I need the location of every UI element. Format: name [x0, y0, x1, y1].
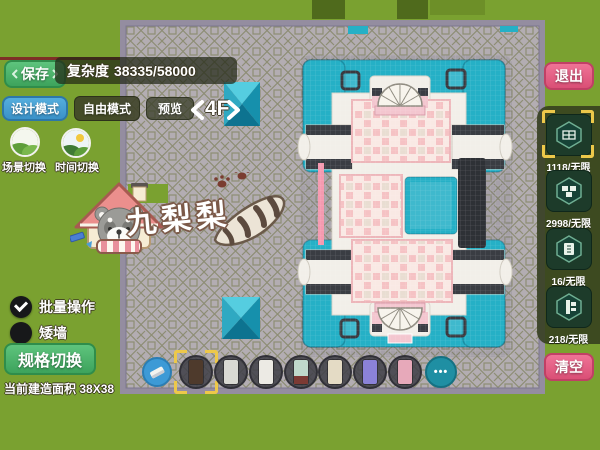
- spec-switch-label: 规格切换: [18, 347, 82, 371]
- material-item-0[interactable]: [179, 355, 213, 389]
- floor-next-button[interactable]: [227, 100, 241, 120]
- batch-op-checkbox[interactable]: [10, 296, 32, 318]
- build-area-label: 当前建造面积: [4, 382, 76, 396]
- complexity-label: 复杂度: [67, 61, 109, 81]
- batch-op-row: 批量操作: [10, 296, 95, 318]
- floor-indicator: 4F: [205, 97, 230, 121]
- low-wall-label: 矮墙: [39, 323, 67, 343]
- resource-item-pillar[interactable]: 218/无限: [537, 286, 600, 346]
- low-wall-row: 矮墙: [10, 322, 67, 344]
- tile-block-icon: [546, 228, 592, 270]
- material-item-1[interactable]: [214, 355, 248, 389]
- free-mode-button[interactable]: 自由模式: [74, 96, 140, 121]
- design-mode-button[interactable]: 设计模式: [2, 96, 68, 121]
- exit-button[interactable]: 退出: [544, 62, 594, 90]
- resource-item-brick[interactable]: 2998/无限: [537, 170, 600, 230]
- time-icon: [63, 130, 89, 156]
- teal-pyramid-2[interactable]: [222, 297, 260, 339]
- floor-prev-button[interactable]: [190, 100, 204, 120]
- paw-print-icon: [214, 172, 250, 188]
- material-item-6[interactable]: [388, 355, 422, 389]
- scene-switch-button[interactable]: [10, 127, 40, 157]
- tree-top-1: [312, 0, 345, 19]
- eraser-icon: [148, 365, 166, 379]
- clear-button[interactable]: 清空: [544, 353, 594, 381]
- build-area-info: 当前建造面积 38X38: [4, 380, 114, 397]
- resource-panel: 1118/无限 2998/无限 16/无限 218/无限: [537, 106, 600, 344]
- tree-top-2: [397, 0, 428, 19]
- wall-block-icon: [546, 114, 592, 156]
- chevron-left-icon: [12, 69, 18, 79]
- eraser-button[interactable]: [142, 357, 172, 387]
- scene-icon: [12, 129, 38, 155]
- material-item-3[interactable]: [284, 355, 318, 389]
- clear-label: 清空: [555, 357, 583, 377]
- scene-switch-label: 场景切换: [2, 159, 46, 175]
- tree-top-3: [430, 0, 485, 15]
- low-wall-checkbox[interactable]: [10, 322, 32, 344]
- time-switch-button[interactable]: [61, 128, 91, 158]
- spec-switch-button[interactable]: 规格切换: [4, 343, 96, 375]
- game-screen: 保存 复杂度 38335/58000 设计模式 自由模式 预览 4F 场景切换: [0, 0, 600, 450]
- complexity-bar: 复杂度 38335/58000: [55, 57, 237, 84]
- build-area-value: 38X38: [79, 382, 114, 396]
- exit-label: 退出: [555, 66, 583, 86]
- material-item-4[interactable]: [318, 355, 352, 389]
- player-name: 九梨梨: [124, 190, 232, 243]
- resource-item-wall[interactable]: 1118/无限: [537, 114, 600, 174]
- more-materials-button[interactable]: •••: [425, 356, 457, 388]
- building[interactable]: [298, 55, 512, 357]
- design-mode-label: 设计模式: [11, 100, 59, 117]
- material-item-2[interactable]: [249, 355, 283, 389]
- material-item-5[interactable]: [353, 355, 387, 389]
- brick-block-icon: [546, 170, 592, 212]
- batch-op-label: 批量操作: [39, 297, 95, 317]
- complexity-value: 38335/58000: [114, 63, 196, 79]
- more-dots-icon: •••: [434, 367, 449, 378]
- free-mode-label: 自由模式: [83, 100, 131, 117]
- resource-count: 218/无限: [537, 331, 600, 346]
- pillar-block-icon: [546, 286, 592, 328]
- preview-button[interactable]: 预览: [146, 97, 194, 120]
- save-label: 保存: [21, 64, 49, 84]
- preview-label: 预览: [158, 100, 182, 117]
- resource-item-tile[interactable]: 16/无限: [537, 228, 600, 288]
